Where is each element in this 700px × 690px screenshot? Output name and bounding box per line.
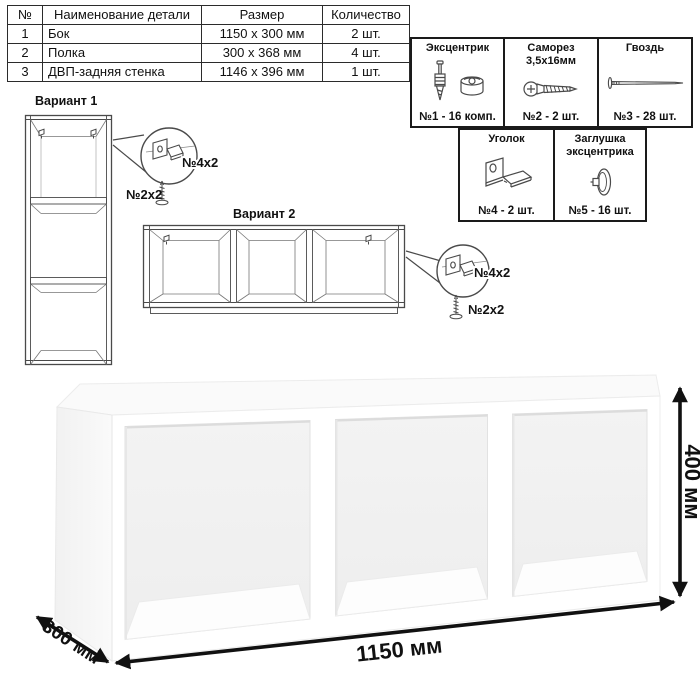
variant2-diagram	[144, 226, 405, 314]
eccentric-cap-icon	[582, 164, 618, 200]
assembly-instruction-sheet: Вариант 1 №4х2 №2х2 Вариант 2	[0, 0, 700, 690]
part-size: 300 x 368 мм	[202, 44, 323, 63]
part-name: ДВП-задняя стенка	[43, 63, 202, 82]
hardware-count-label: №3 - 28 шт.	[614, 111, 677, 126]
part-size: 1146 x 396 мм	[202, 63, 323, 82]
part-name: Бок	[43, 25, 202, 44]
table-row: 2 Полка 300 x 368 мм 4 шт.	[8, 44, 410, 63]
hardware-title: Эксцентрик	[424, 39, 491, 55]
hardware-title: Уголок	[486, 130, 526, 146]
hardware-count-label: №4 - 2 шт.	[478, 205, 534, 220]
shelf-3d-render	[55, 375, 660, 661]
hardware-cell-eccentric: Эксцентрик №1 - 16 комп.	[410, 37, 505, 128]
screw-icon	[522, 76, 580, 102]
hardware-cell-screw: Саморез 3,5х16мм №2 - 2 шт.	[503, 37, 599, 128]
hardware-cell-cap: Заглушка эксцентрика №5 - 16 шт.	[553, 128, 647, 222]
header-num: №	[8, 6, 43, 25]
eccentric-fitting-icon	[422, 60, 494, 106]
part-qty: 1 шт.	[323, 63, 410, 82]
variant2-title: Вариант 2	[233, 207, 295, 221]
variant1-diagram	[26, 116, 112, 365]
dim-height-label: 400 мм	[680, 444, 700, 519]
hardware-title: Саморез 3,5х16мм	[505, 39, 597, 67]
part-qty: 4 шт.	[323, 44, 410, 63]
hardware-title: Гвоздь	[624, 39, 666, 55]
hardware-cell-bracket: Уголок №4 - 2 шт.	[458, 128, 555, 222]
part-num: 3	[8, 63, 43, 82]
hardware-title: Заглушка эксцентрика	[555, 130, 645, 158]
dim-width-label: 1150 мм	[355, 632, 444, 666]
parts-table: № Наименование детали Размер Количество …	[7, 5, 410, 82]
corner-bracket-icon	[477, 156, 537, 194]
hardware-count-label: №5 - 16 шт.	[569, 205, 632, 220]
wall-bracket-icon	[91, 129, 96, 138]
part-size: 1150 x 300 мм	[202, 25, 323, 44]
hardware-cell-nail: Гвоздь №3 - 28 шт.	[597, 37, 693, 128]
wall-bracket-icon	[366, 235, 371, 244]
header-qty: Количество	[323, 6, 410, 25]
table-row: 3 ДВП-задняя стенка 1146 x 396 мм 1 шт.	[8, 63, 410, 82]
variant1-title: Вариант 1	[35, 94, 97, 108]
callout1-bracket-label: №4х2	[182, 155, 218, 170]
part-qty: 2 шт.	[323, 25, 410, 44]
hardware-count-label: №1 - 16 комп.	[419, 111, 496, 126]
parts-table-header-row: № Наименование детали Размер Количество	[8, 6, 410, 25]
part-name: Полка	[43, 44, 202, 63]
wall-bracket-icon	[164, 235, 169, 244]
wall-bracket-icon	[39, 129, 44, 138]
callout1-screw-label: №2х2	[126, 187, 162, 202]
screw-icon	[450, 295, 462, 319]
header-name: Наименование детали	[43, 6, 202, 25]
callout2-bracket-label: №4х2	[474, 265, 510, 280]
header-size: Размер	[202, 6, 323, 25]
table-row: 1 Бок 1150 x 300 мм 2 шт.	[8, 25, 410, 44]
hardware-count-label: №2 - 2 шт.	[523, 111, 579, 126]
part-num: 2	[8, 44, 43, 63]
callout2-screw-label: №2х2	[468, 302, 504, 317]
nail-icon	[603, 73, 687, 93]
part-num: 1	[8, 25, 43, 44]
